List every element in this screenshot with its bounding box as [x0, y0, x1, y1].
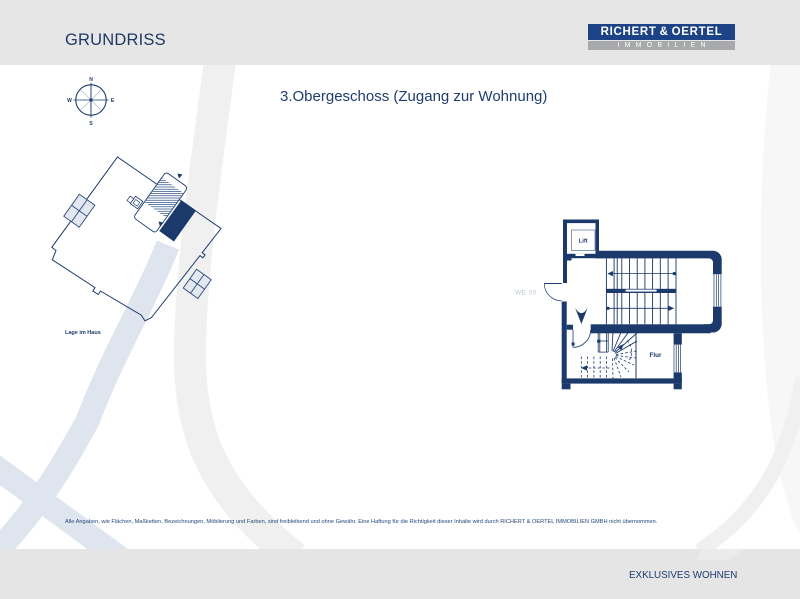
- svg-text:Flur: Flur: [650, 352, 662, 359]
- svg-text:N: N: [89, 77, 93, 83]
- svg-text:E: E: [111, 98, 115, 104]
- svg-text:WE 05: WE 05: [515, 290, 537, 297]
- svg-text:S: S: [89, 121, 93, 127]
- svg-text:Lift: Lift: [579, 239, 588, 245]
- svg-text:W: W: [67, 98, 72, 104]
